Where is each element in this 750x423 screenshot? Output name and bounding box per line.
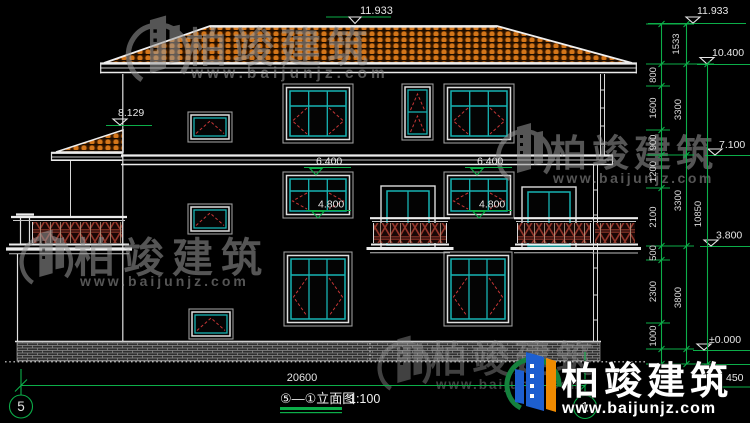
porch-roof [51,130,123,161]
dim-segment: 1533 [671,33,682,54]
elevation-marker-ground: ±0.000 [693,334,750,351]
dim-storey: 3800 [673,287,684,308]
cad-elevation-canvas: 柏竣建筑 www.baijunjz.com 柏竣建筑 www.baijunjz.… [0,0,750,423]
elevation-marker-porch: 8.129 [106,107,152,126]
brand-name: 柏竣建筑 [561,361,733,403]
dim-segment: 2300 [648,281,659,302]
watermark-logo-icon [128,16,188,80]
watermark-url: www.baijunjz.com [552,170,714,186]
drawing-title: ⑤—①立面图 1:100 [280,391,380,413]
window-1f-right [444,252,512,326]
brand-url: www.baijunjz.com [561,400,716,417]
watermark-mid-left: 柏竣建筑 www.baijunjz.com [22,230,270,290]
window-1f-left [284,252,352,326]
elevation-value: 3.800 [716,230,742,242]
elevation-value: 6.400 [477,156,503,168]
title-underline-thin [280,412,342,413]
dim-total-height: 10850 [693,201,704,227]
dim-segment: 800 [648,67,659,83]
dim-overall-width: 20600 [287,372,318,384]
logo-building-blue-small [515,369,524,404]
elevation-marker-eave: 10.400 [697,47,750,65]
watermark-brand: 柏竣建筑 [550,132,718,174]
elevation-marker-ridge-right: 11.933 [648,5,746,24]
elevation-drawing: 柏竣建筑 www.baijunjz.com 柏竣建筑 www.baijunjz.… [0,0,750,423]
elevation-marker-ridge: 11.933 [326,5,393,24]
logo-building-blue [526,352,544,411]
dim-segment: 1000 [648,325,659,346]
elevation-value: 4.800 [318,199,344,211]
drawing-title-text: ⑤—①立面图 [280,391,355,406]
brand-logo-color: 柏竣建筑 www.baijunjz.com [497,349,733,420]
dim-storey: 3300 [673,99,684,120]
dim-segment: 500 [648,245,659,261]
balcony-side [589,218,641,253]
logo-building-orange [546,358,556,412]
dim-segment: 2100 [648,206,659,227]
axis-number: 5 [17,399,25,414]
drawing-scale: 1:100 [349,392,380,406]
window-3f-small [188,112,232,142]
window-2f-small [188,204,232,234]
dim-storey: 3300 [673,190,684,211]
watermark-url: www.baijunjz.com [190,65,389,82]
elevation-value: 11.933 [360,5,393,17]
elevation-value: 4.800 [479,199,505,211]
window-3f-narrow [402,84,433,140]
window-3f-right [444,84,514,143]
title-underline [280,407,342,410]
window-1f-small [189,309,233,339]
elevation-value: 7.100 [719,139,745,151]
dim-segment: 900 [648,135,659,151]
dimension-chain-right: 1533 800 1600 900 1200 2100 500 2300 100… [646,21,714,367]
elevation-value: 6.400 [316,156,342,168]
dim-segment: 1200 [648,161,659,182]
balcony-right [511,218,598,253]
elevation-value: ±0.000 [709,334,741,346]
window-3f-left [283,84,353,143]
balcony-center [367,218,454,253]
elevation-value: 8.129 [118,107,144,119]
elevation-value: 10.400 [712,47,744,59]
watermark-url: www.baijunjz.com [79,273,249,289]
axis-bubble-left: 5 [10,369,33,418]
dim-segment: 1600 [648,97,659,118]
elevation-value: 11.933 [697,5,728,17]
